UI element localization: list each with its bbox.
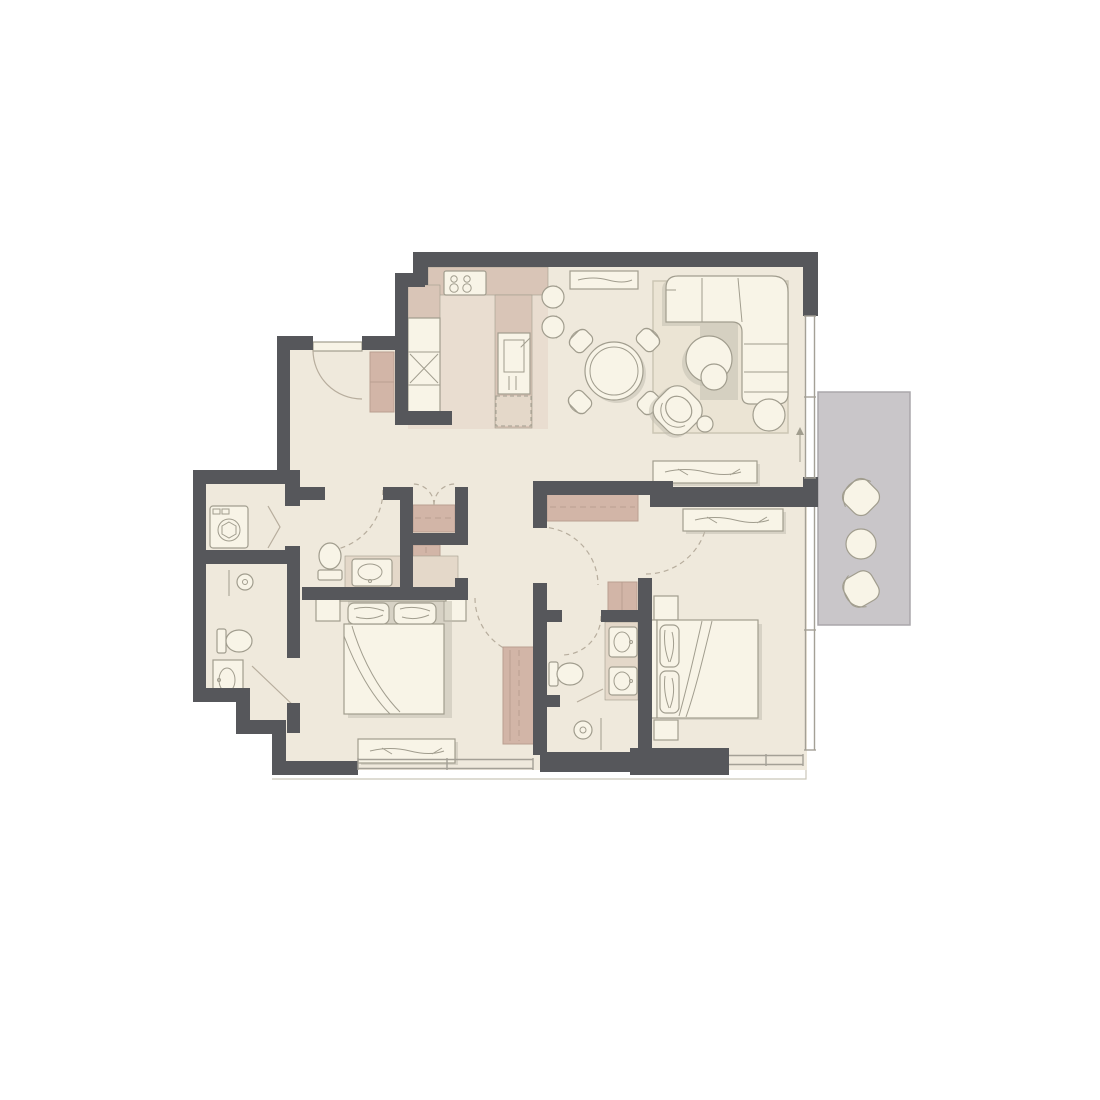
dresser (358, 739, 458, 765)
toilet-symbol (318, 543, 342, 580)
nesting-table (701, 364, 727, 390)
toilet-symbol (217, 629, 252, 653)
sideboard (570, 271, 638, 289)
washing-machine-symbol (210, 506, 248, 548)
nightstand (654, 596, 678, 620)
nightstand (654, 720, 678, 740)
dining-table (585, 342, 643, 400)
side-table (697, 416, 713, 432)
bar-stool (542, 316, 564, 338)
balcony (818, 392, 910, 625)
floor-plan-canvas (0, 0, 1100, 1100)
kitchen-counter-left (408, 285, 440, 322)
floor-plan-page (0, 0, 1100, 1100)
entry-door-leaf (313, 342, 362, 351)
bar-stool (542, 286, 564, 308)
kitchen-tall-cabinets (408, 318, 440, 418)
toilet-symbol (549, 662, 583, 686)
dresser (683, 509, 786, 534)
window-bedroom2-right (804, 507, 816, 750)
balcony-table (846, 529, 876, 559)
island-sink-symbol (498, 333, 530, 394)
vanity-sink-symbol (609, 627, 637, 657)
pillow (348, 603, 389, 624)
vanity-sink-symbol (352, 559, 392, 586)
ottoman (753, 399, 785, 431)
pillow (394, 603, 436, 624)
pillow (660, 625, 679, 667)
stove-symbol (444, 271, 486, 295)
pillow (660, 671, 679, 713)
dishwasher-symbol (496, 396, 531, 426)
vanity-sink-symbol (609, 667, 637, 695)
double-bed-symbol (650, 620, 758, 718)
window-living-right (804, 316, 816, 478)
